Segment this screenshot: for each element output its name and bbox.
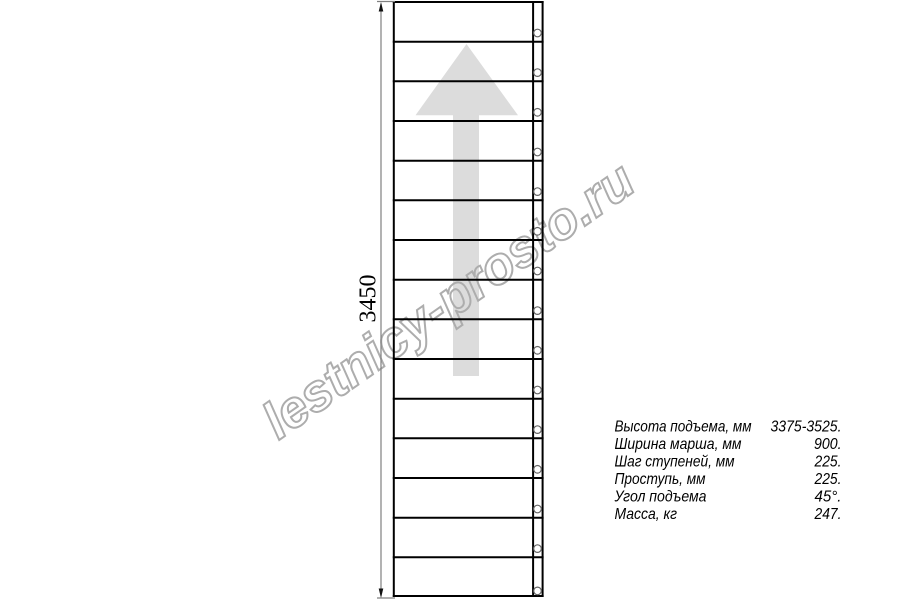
svg-text:Масса, кг: Масса, кг	[615, 506, 678, 523]
svg-text:45°.: 45°.	[815, 489, 842, 506]
svg-text:3375-3525.: 3375-3525.	[771, 419, 842, 436]
svg-text:Проступь, мм: Проступь, мм	[615, 471, 706, 488]
svg-text:Угол подъема: Угол подъема	[614, 489, 707, 506]
svg-text:225.: 225.	[814, 471, 842, 488]
svg-text:247.: 247.	[814, 506, 842, 523]
svg-text:3450: 3450	[356, 275, 382, 323]
svg-text:Ширина марша, мм: Ширина марша, мм	[615, 436, 742, 453]
svg-text:225.: 225.	[814, 454, 842, 471]
svg-text:Шаг ступеней, мм: Шаг ступеней, мм	[615, 454, 735, 471]
svg-text:lestnicy-prosto.ru: lestnicy-prosto.ru	[252, 151, 645, 450]
svg-text:Высота подъема, мм: Высота подъема, мм	[615, 419, 752, 436]
svg-text:900.: 900.	[814, 436, 842, 453]
